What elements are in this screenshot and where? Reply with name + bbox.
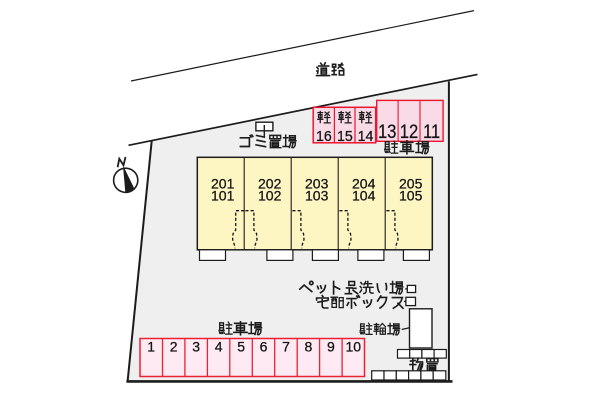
svg-text:101: 101 — [211, 187, 235, 203]
svg-text:4: 4 — [215, 338, 223, 354]
svg-text:6: 6 — [260, 338, 268, 354]
svg-text:13: 13 — [378, 122, 397, 143]
svg-text:7: 7 — [282, 338, 290, 354]
svg-text:14: 14 — [358, 128, 374, 145]
svg-text:8: 8 — [305, 338, 313, 354]
svg-text:16: 16 — [316, 128, 332, 145]
svg-text:11: 11 — [423, 122, 440, 143]
svg-text:103: 103 — [305, 187, 329, 203]
svg-text:9: 9 — [327, 338, 335, 354]
svg-text:102: 102 — [258, 187, 282, 203]
svg-text:2: 2 — [170, 338, 178, 354]
svg-text:10: 10 — [346, 338, 362, 354]
svg-text:5: 5 — [237, 338, 245, 354]
svg-text:1: 1 — [147, 338, 155, 354]
svg-text:12: 12 — [400, 122, 419, 143]
svg-text:104: 104 — [352, 187, 376, 203]
svg-text:15: 15 — [337, 128, 353, 145]
svg-text:105: 105 — [399, 187, 423, 203]
svg-text:3: 3 — [192, 338, 200, 354]
